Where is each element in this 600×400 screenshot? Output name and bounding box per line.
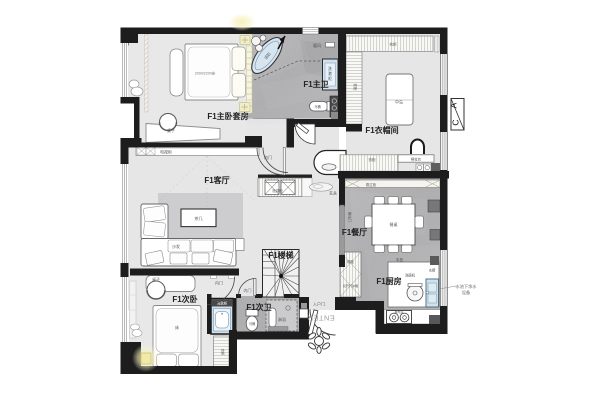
svg-text:中岛: 中岛 [395,99,403,105]
svg-text:洗: 洗 [328,66,332,71]
svg-text:洗烘柜: 洗烘柜 [272,188,283,193]
svg-text:2000/2200床: 2000/2200床 [195,71,216,76]
svg-text:梫妆台: 梫妆台 [411,156,422,161]
svg-text:茶几: 茶几 [195,215,203,221]
svg-text:F1次卫: F1次卫 [246,302,271,312]
svg-text:橱立柜: 橱立柜 [366,182,377,187]
svg-text:F1衣帽间: F1衣帽间 [365,125,398,135]
svg-text:漱: 漱 [328,71,332,76]
svg-text:洗漱柜: 洗漱柜 [217,301,228,306]
svg-text:ENTER: ENTER [307,314,335,323]
svg-text:入户门: 入户门 [313,301,325,307]
svg-text:马桶: 马桶 [249,321,255,326]
svg-text:电视柜: 电视柜 [160,149,172,155]
svg-text:沙发: 沙发 [172,243,180,249]
svg-text:玄关: 玄关 [329,190,337,196]
svg-text:马桶: 马桶 [314,104,321,109]
svg-text:中岛: 中岛 [396,257,404,262]
svg-text:F1主卧套房: F1主卧套房 [207,111,248,121]
svg-text:床: 床 [175,324,179,330]
svg-text:水池下净水: 水池下净水 [456,283,478,290]
svg-text:F1客厅: F1客厅 [204,175,229,185]
svg-text:F1次卧: F1次卧 [172,294,197,304]
svg-text:F1厨房: F1厨房 [376,276,401,286]
svg-text:F1主卫: F1主卫 [303,79,328,89]
svg-text:内门: 内门 [244,287,252,293]
svg-text:内门: 内门 [215,280,223,286]
svg-text:橱柜: 橱柜 [347,259,354,264]
svg-text:C: C [451,119,461,125]
svg-text:衣柜: 衣柜 [221,349,226,356]
svg-text:衣柜: 衣柜 [389,42,397,47]
svg-text:水槽: 水槽 [429,268,436,273]
svg-text:设备: 设备 [462,289,471,296]
svg-text:柜: 柜 [328,76,332,81]
svg-text:桌子: 桌子 [167,127,175,133]
svg-text:餐桌: 餐桌 [390,221,398,227]
svg-text:A: A [449,102,459,108]
svg-text:衣柜: 衣柜 [368,157,376,162]
svg-text:燃气灶: 燃气灶 [394,310,403,315]
svg-text:F1楼梯: F1楼梯 [268,250,293,260]
svg-text:衣柜: 衣柜 [353,83,358,91]
svg-text:F1餐厅: F1餐厅 [342,227,367,237]
svg-text:洗碗机: 洗碗机 [405,273,416,278]
svg-text:双开门冰箱: 双开门冰箱 [343,283,358,288]
svg-text:淋浴: 淋浴 [278,316,286,322]
svg-text:推拉门: 推拉门 [348,212,353,223]
svg-text:暖风: 暖风 [313,42,321,48]
